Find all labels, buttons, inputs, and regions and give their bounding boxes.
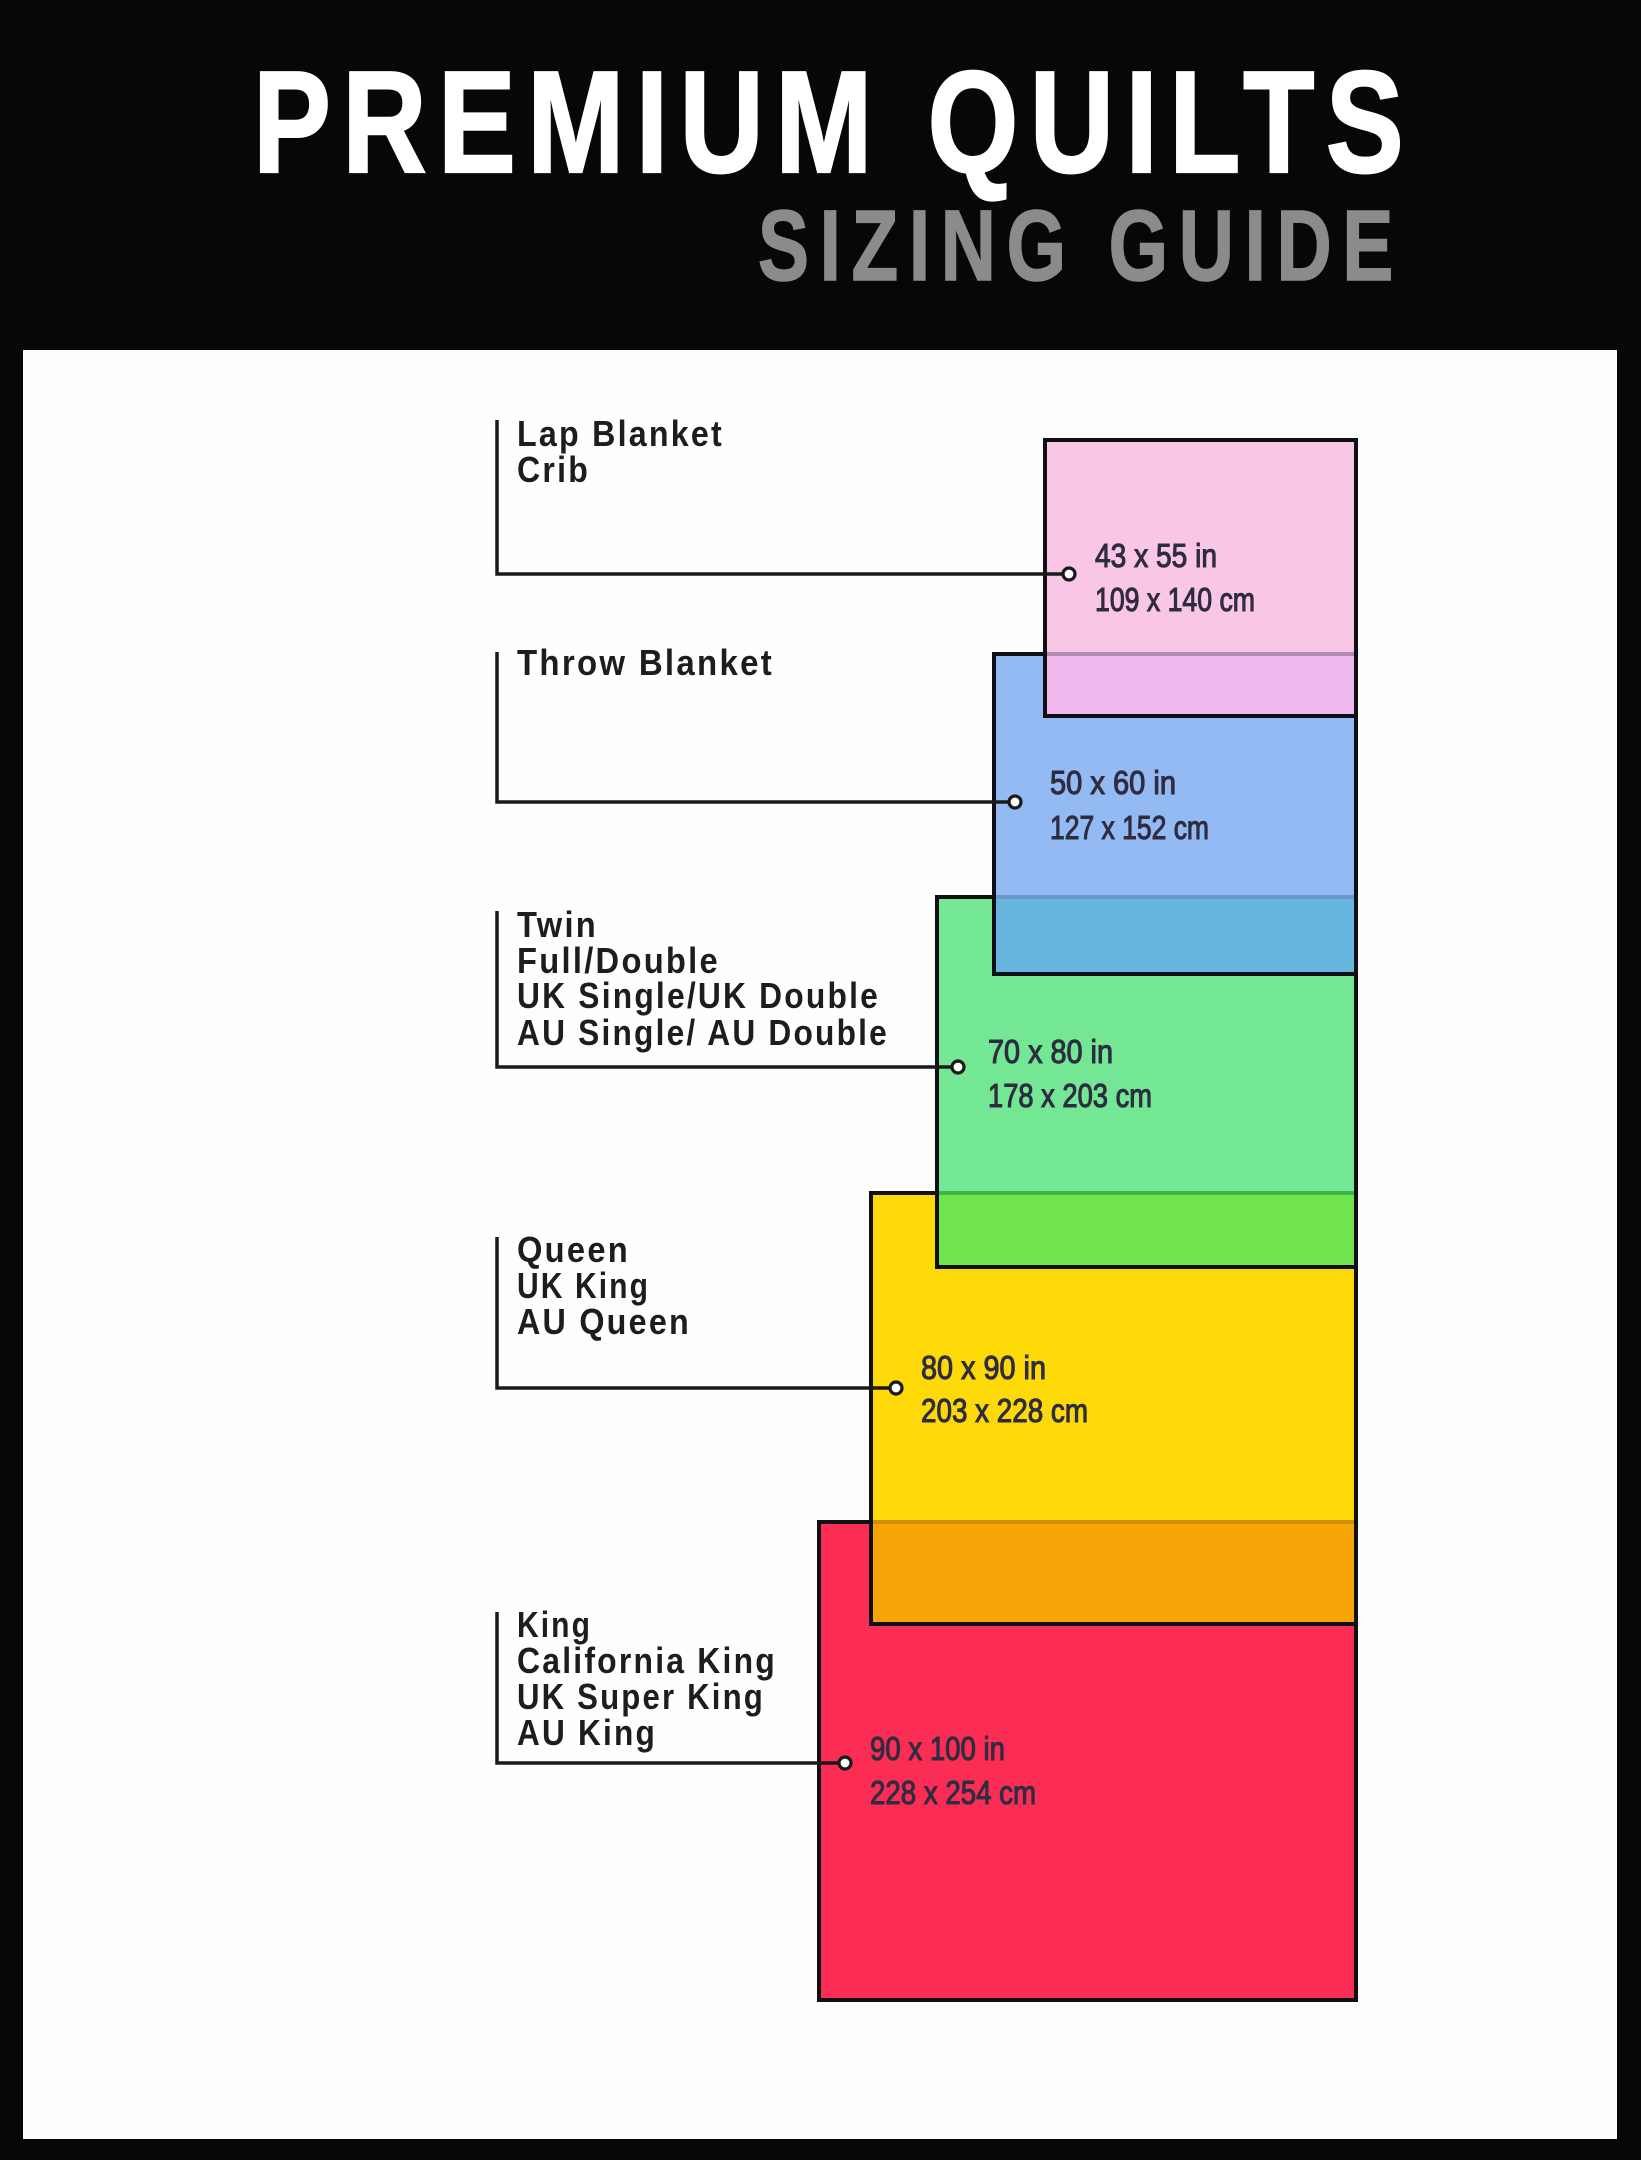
- svg-text:SIZING GUIDE: SIZING GUIDE: [758, 190, 1404, 302]
- svg-text:AU Single/ AU Double: AU Single/ AU Double: [517, 1012, 889, 1053]
- svg-text:Queen: Queen: [517, 1229, 630, 1270]
- svg-text:California King: California King: [517, 1640, 777, 1681]
- svg-text:127 x 152 cm: 127 x 152 cm: [1050, 809, 1209, 846]
- svg-text:UK Single/UK Double: UK Single/UK Double: [517, 975, 880, 1016]
- svg-text:Twin: Twin: [517, 904, 598, 945]
- svg-text:50 x 60 in: 50 x 60 in: [1050, 764, 1176, 801]
- svg-text:109 x 140 cm: 109 x 140 cm: [1095, 581, 1255, 618]
- svg-text:80 x 90 in: 80 x 90 in: [921, 1349, 1046, 1386]
- svg-text:70 x 80 in: 70 x 80 in: [988, 1033, 1113, 1070]
- svg-text:PREMIUM QUILTS: PREMIUM QUILTS: [253, 41, 1415, 203]
- svg-text:UK King: UK King: [517, 1265, 650, 1306]
- svg-text:203 x 228 cm: 203 x 228 cm: [921, 1392, 1088, 1429]
- svg-text:AU Queen: AU Queen: [517, 1301, 691, 1342]
- svg-text:King: King: [517, 1604, 592, 1645]
- svg-text:UK Super King: UK Super King: [517, 1676, 765, 1717]
- svg-text:178 x 203 cm: 178 x 203 cm: [988, 1077, 1152, 1114]
- svg-text:Crib: Crib: [517, 449, 590, 490]
- svg-text:90 x 100 in: 90 x 100 in: [870, 1730, 1005, 1767]
- svg-text:Lap Blanket: Lap Blanket: [517, 413, 724, 454]
- svg-text:43 x 55 in: 43 x 55 in: [1095, 537, 1217, 574]
- svg-text:228 x 254 cm: 228 x 254 cm: [870, 1774, 1036, 1811]
- svg-text:Throw Blanket: Throw Blanket: [517, 642, 774, 683]
- svg-text:AU King: AU King: [517, 1712, 657, 1753]
